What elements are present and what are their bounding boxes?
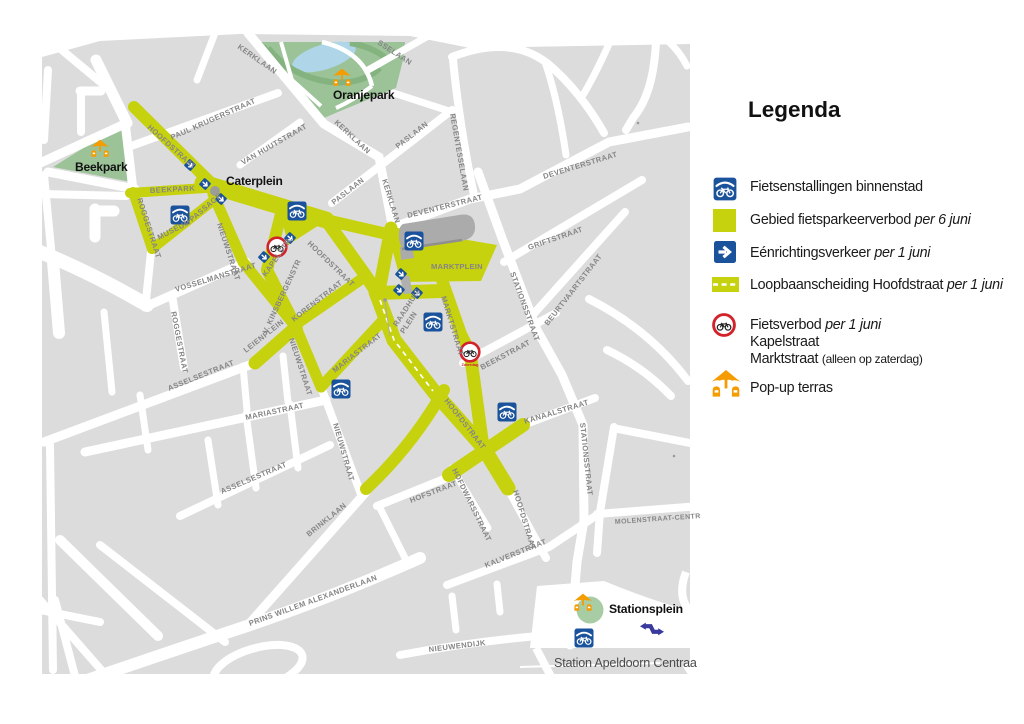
svg-text:Beekpark: Beekpark (75, 160, 128, 174)
svg-text:Station Apeldoorn Centraa: Station Apeldoorn Centraa (554, 656, 697, 670)
svg-text:Kapelstraat: Kapelstraat (750, 334, 819, 350)
svg-text:Legenda: Legenda (748, 97, 841, 122)
svg-text:Stationsplein: Stationsplein (609, 602, 683, 616)
svg-text:Marktstraat (alleen op zaterda: Marktstraat (alleen op zaterdag) (750, 351, 923, 367)
svg-text:Caterplein: Caterplein (226, 174, 283, 188)
svg-text:Fietsverbod per 1 juni: Fietsverbod per 1 juni (750, 317, 882, 333)
svg-text:Gebied fietsparkeerverbod per: Gebied fietsparkeerverbod per 6 juni (750, 212, 972, 228)
svg-text:Eénrichtingsverkeer per 1 juni: Eénrichtingsverkeer per 1 juni (750, 245, 931, 261)
svg-text:Pop-up terras: Pop-up terras (750, 380, 833, 396)
svg-text:Oranjepark: Oranjepark (333, 88, 395, 102)
svg-text:Zaterdag: Zaterdag (462, 362, 479, 367)
svg-text:Fietsenstallingen binnenstad: Fietsenstallingen binnenstad (750, 179, 923, 195)
svg-text:MARKTPLEIN: MARKTPLEIN (431, 262, 483, 271)
svg-text:Loopbaanscheiding Hoofdstraat: Loopbaanscheiding Hoofdstraat per 1 juni (750, 277, 1004, 293)
